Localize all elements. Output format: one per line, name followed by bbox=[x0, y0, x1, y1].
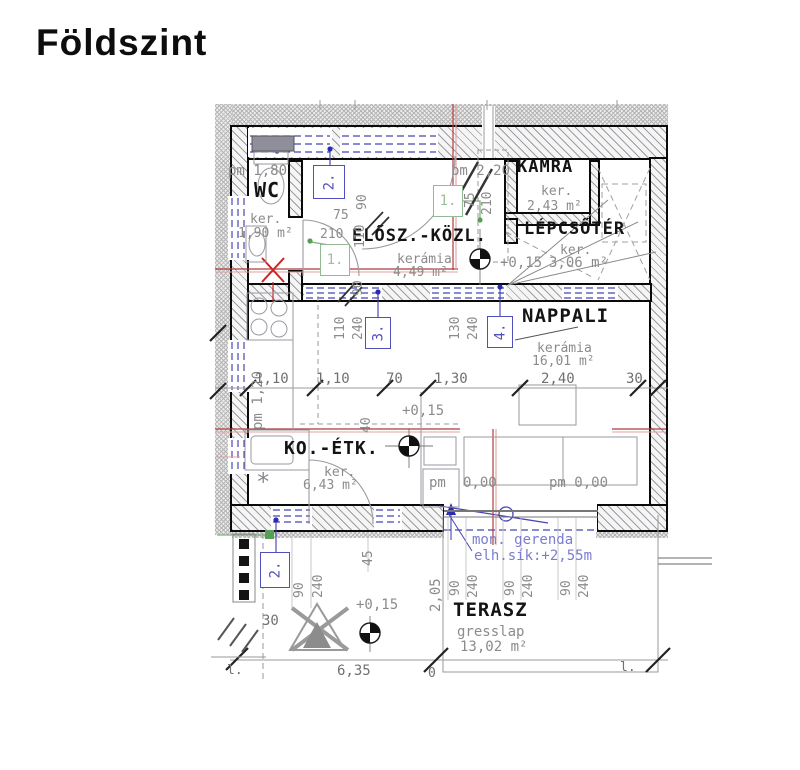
terasz-area: 13,02 m² bbox=[460, 640, 527, 655]
lepcsoter-area: 3,06 m² bbox=[549, 256, 608, 271]
level-marker-terrace bbox=[360, 616, 380, 652]
door3-width: 110 bbox=[334, 317, 348, 340]
tree-symbol bbox=[290, 604, 348, 650]
room-label-kamra: KAMRA bbox=[517, 159, 573, 177]
door-tag-4: 4. bbox=[487, 316, 513, 348]
nappali-area: 16,01 m² bbox=[532, 355, 595, 369]
wc-finish: ker. bbox=[250, 213, 281, 227]
lepcsoter-level: +0,15 bbox=[500, 256, 542, 271]
wc-area: 1,90 m² bbox=[238, 227, 293, 241]
beam-note: mon. gerenda bbox=[472, 533, 573, 548]
room-label-nappali: NAPPALI bbox=[522, 307, 609, 327]
door-tag-2-top: 2. bbox=[313, 165, 345, 199]
entry-dim-110: 110 bbox=[354, 225, 368, 248]
door-tag-2-bottom: 2. bbox=[260, 552, 290, 588]
door2b-height: 240 bbox=[312, 575, 326, 598]
dim-635: 6,35 bbox=[337, 664, 371, 679]
wc-door-width: 75 bbox=[333, 209, 349, 223]
asterisk-mark: * bbox=[256, 470, 270, 495]
chain-240: 2,40 bbox=[541, 372, 575, 387]
parapet-nappali-b: pm 0,00 bbox=[549, 476, 608, 491]
terasz-finish: gresslap bbox=[457, 625, 524, 640]
level-marker-kitchen bbox=[385, 428, 433, 468]
wc-door-height: 210 bbox=[320, 228, 343, 242]
chain-30: 30 bbox=[626, 372, 643, 387]
terasz-dim-90c: 90 bbox=[560, 580, 574, 596]
floor-plan-page: Földszint bbox=[0, 0, 800, 770]
dim-30-steps: 30 bbox=[262, 614, 279, 629]
room-label-koetk: KO.-ÉTK. bbox=[284, 440, 379, 459]
terasz-dim-90a: 90 bbox=[449, 580, 463, 596]
level-kitchen: +0,15 bbox=[402, 404, 444, 419]
kamra-finish: ker. bbox=[541, 185, 572, 199]
terasz-dim-240b: 240 bbox=[522, 575, 536, 598]
door2b-width: 90 bbox=[293, 582, 307, 598]
chain-110a: 1,10 bbox=[255, 372, 289, 387]
terasz-dim-90b: 90 bbox=[504, 580, 518, 596]
dim-45: 45 bbox=[362, 550, 376, 566]
door3-height: 240 bbox=[352, 317, 366, 340]
section-mark-right: l. bbox=[620, 661, 636, 675]
section-mark-left: l. bbox=[227, 664, 243, 678]
terasz-dim-240a: 240 bbox=[467, 575, 481, 598]
door4-width: 130 bbox=[449, 317, 463, 340]
parapet-nappali-a-label: pm bbox=[429, 476, 446, 491]
terasz-dim-240c: 240 bbox=[578, 575, 592, 598]
elosz-area: 4,49 m² bbox=[393, 266, 448, 280]
kamra-area: 2,43 m² bbox=[527, 200, 582, 214]
kamra-window-height: 210 bbox=[481, 192, 495, 215]
dim-205: 2,05 bbox=[429, 578, 444, 612]
room-label-wc: WC bbox=[254, 180, 280, 201]
chain-70: 70 bbox=[386, 372, 403, 387]
level-terrace: +0,15 bbox=[356, 598, 398, 613]
beam-level-note: elh.sík:+2,55m bbox=[474, 549, 592, 564]
parapet-nappali-a-value: 0,00 bbox=[463, 476, 497, 491]
window-tag-1-top: 1. bbox=[433, 185, 463, 217]
room-label-lepcsoter: LÉPCSŐTÉR bbox=[524, 221, 625, 239]
chain-130: 1,30 bbox=[434, 372, 468, 387]
room-label-terasz: TERASZ bbox=[453, 601, 528, 621]
window-tag-1-mid: 1. bbox=[320, 244, 350, 276]
wc-parapet: pm 1,80 bbox=[228, 164, 287, 179]
dim-40: 40 bbox=[360, 417, 374, 433]
nappali-label-leader bbox=[515, 327, 578, 340]
door-tag-3: 3. bbox=[365, 317, 391, 349]
room-label-elosz: ELŐSZ.-KÖZL. bbox=[352, 228, 487, 246]
koetk-area: 6,43 m² bbox=[303, 479, 358, 493]
kamra-window-width: 75 bbox=[464, 192, 478, 208]
entry-dim-90a: 90 bbox=[356, 194, 370, 210]
dim-0: 0 bbox=[428, 667, 436, 681]
entry-dim-90b: 90 bbox=[352, 280, 366, 296]
door4-height: 240 bbox=[467, 317, 481, 340]
chain-110b: 1,10 bbox=[316, 372, 350, 387]
kamra-parapet: pm 2,20 bbox=[451, 164, 510, 179]
